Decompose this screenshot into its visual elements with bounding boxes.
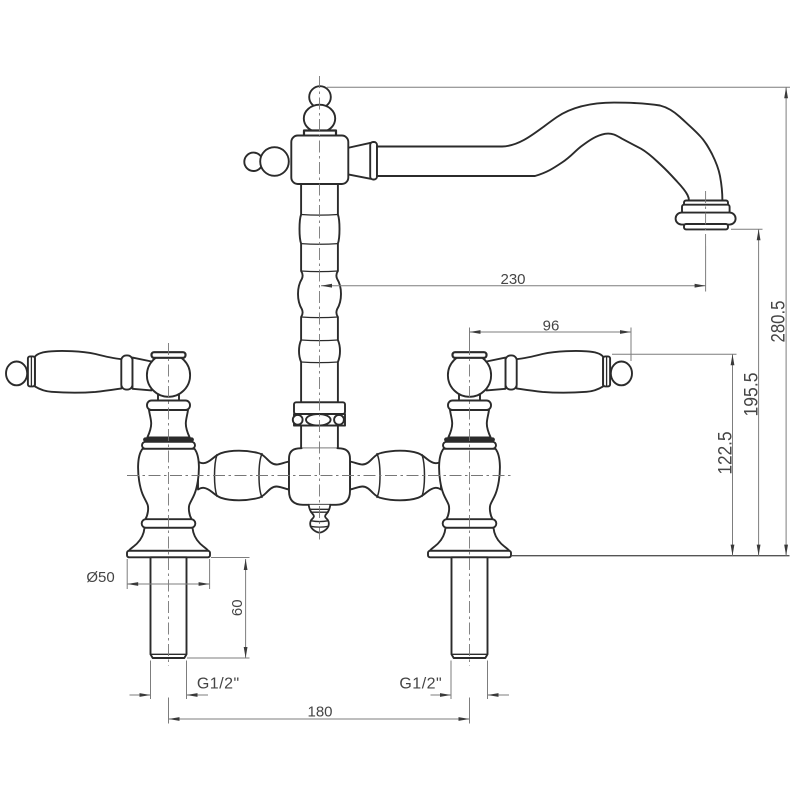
svg-text:230: 230 [500,271,525,288]
svg-text:G1/2": G1/2" [197,676,240,693]
svg-text:195.5: 195.5 [742,373,763,417]
svg-text:280.5: 280.5 [769,301,790,343]
svg-text:60: 60 [229,599,246,616]
svg-text:180: 180 [307,704,332,721]
svg-text:96: 96 [543,318,560,335]
svg-text:G1/2": G1/2" [399,676,442,693]
svg-text:122.5: 122.5 [716,432,737,475]
svg-text:Ø50: Ø50 [86,569,114,586]
